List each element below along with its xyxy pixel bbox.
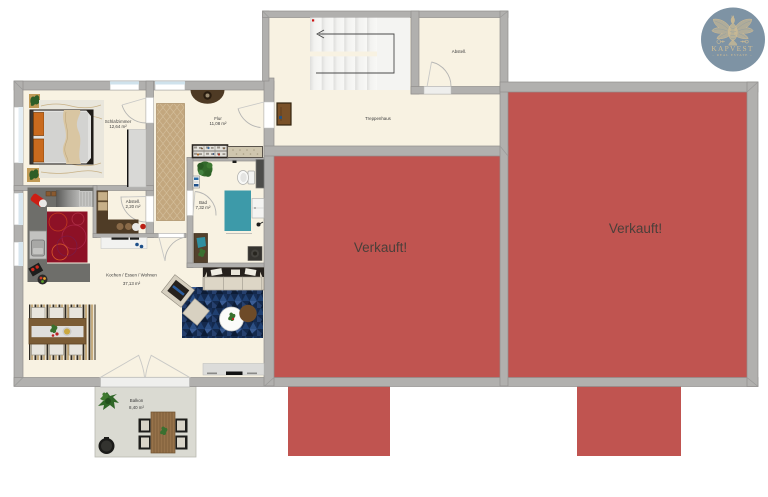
- svg-text:12,64 m²: 12,64 m²: [109, 124, 127, 129]
- svg-text:Kochen / Essen / Wohnen: Kochen / Essen / Wohnen: [106, 273, 157, 278]
- svg-text:7,32 m²: 7,32 m²: [196, 205, 211, 210]
- svg-text:Abstell.: Abstell.: [452, 49, 466, 54]
- svg-text:11,08 m²: 11,08 m²: [209, 121, 227, 126]
- svg-text:Balkon: Balkon: [130, 398, 144, 403]
- svg-text:Verkauft!: Verkauft!: [354, 240, 407, 255]
- svg-text:KAPVEST: KAPVEST: [711, 44, 753, 53]
- svg-text:– REAL ESTATE –: – REAL ESTATE –: [711, 53, 752, 57]
- svg-text:8,40 m²: 8,40 m²: [129, 405, 144, 410]
- svg-text:37,13 m²: 37,13 m²: [123, 281, 141, 286]
- svg-text:2,20 m²: 2,20 m²: [126, 204, 141, 209]
- svg-text:Treppenhaus: Treppenhaus: [365, 116, 392, 121]
- svg-text:Verkauft!: Verkauft!: [609, 221, 662, 236]
